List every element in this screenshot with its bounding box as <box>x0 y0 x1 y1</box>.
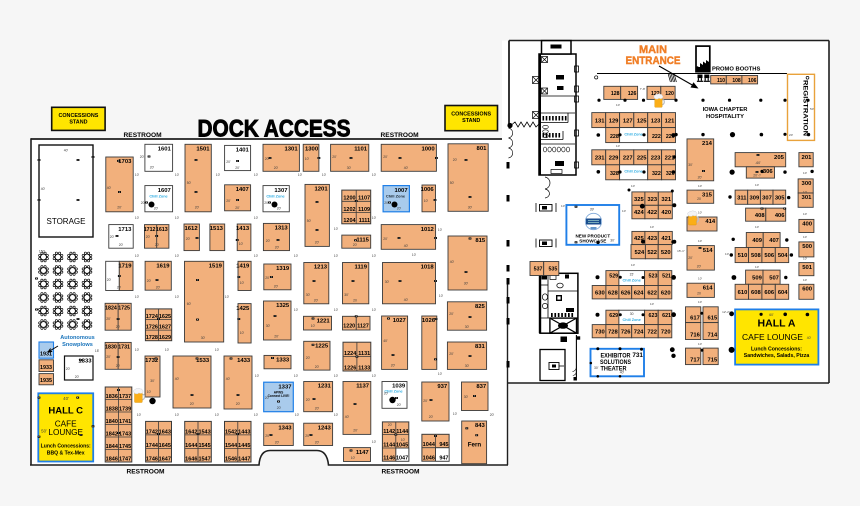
svg-text:20': 20' <box>186 237 191 241</box>
svg-text:10': 10' <box>561 204 565 208</box>
svg-text:20': 20' <box>353 429 358 433</box>
svg-text:1747: 1747 <box>119 456 131 462</box>
svg-text:1047: 1047 <box>396 456 408 462</box>
svg-text:30': 30' <box>385 280 390 284</box>
svg-text:1027: 1027 <box>393 318 407 324</box>
svg-text:10': 10' <box>295 413 300 417</box>
svg-text:1824: 1824 <box>105 306 117 312</box>
svg-text:228: 228 <box>610 134 619 140</box>
svg-text:10': 10' <box>438 228 443 232</box>
svg-text:507: 507 <box>769 275 779 281</box>
svg-text:1221: 1221 <box>317 319 331 325</box>
svg-text:20': 20' <box>265 396 270 400</box>
svg-text:1445: 1445 <box>238 443 250 449</box>
svg-text:20'-?: 20'-? <box>753 174 761 178</box>
svg-text:604: 604 <box>778 290 788 296</box>
svg-text:20': 20' <box>306 356 311 360</box>
svg-text:30': 30' <box>266 324 271 328</box>
svg-text:323: 323 <box>647 197 657 203</box>
svg-text:Chill Zone: Chill Zone <box>266 195 284 199</box>
svg-text:1146: 1146 <box>383 456 395 462</box>
svg-text:20': 20' <box>147 279 152 283</box>
svg-text:131: 131 <box>595 118 605 124</box>
svg-text:125: 125 <box>637 118 647 124</box>
svg-text:1018: 1018 <box>421 265 435 271</box>
svg-text:10': 10' <box>239 242 244 246</box>
svg-text:10': 10' <box>135 348 140 352</box>
svg-text:1846: 1846 <box>106 456 118 462</box>
svg-text:108: 108 <box>732 78 741 84</box>
svg-text:322: 322 <box>652 171 661 177</box>
svg-text:7'-8': 7'-8' <box>640 87 646 91</box>
svg-text:10': 10' <box>298 173 303 177</box>
svg-text:20': 20' <box>106 355 111 359</box>
svg-text:10': 10' <box>334 413 339 417</box>
svg-text:110: 110 <box>717 78 725 84</box>
svg-text:214: 214 <box>702 141 713 147</box>
svg-text:1739: 1739 <box>119 406 131 412</box>
svg-text:20': 20' <box>332 155 337 159</box>
svg-text:RESTROOM: RESTROOM <box>124 132 163 139</box>
svg-text:50': 50' <box>307 219 312 223</box>
svg-text:1006: 1006 <box>421 187 435 193</box>
svg-text:CONCESSIONS: CONCESSIONS <box>451 112 491 118</box>
svg-text:10': 10' <box>225 295 230 299</box>
svg-text:20': 20' <box>384 392 389 396</box>
svg-text:-60': -60' <box>755 161 761 165</box>
svg-text:1407: 1407 <box>236 187 250 193</box>
svg-text:10': 10' <box>616 103 620 107</box>
svg-text:Fern: Fern <box>468 442 482 449</box>
svg-text:205: 205 <box>774 155 785 161</box>
svg-text:20': 20' <box>265 157 270 161</box>
svg-text:524: 524 <box>635 250 645 256</box>
svg-text:1546: 1546 <box>225 456 237 462</box>
svg-text:CONCESSIONS: CONCESSIONS <box>58 113 98 119</box>
svg-text:626: 626 <box>621 290 631 296</box>
svg-text:305: 305 <box>775 195 785 201</box>
svg-text:20': 20' <box>453 158 458 162</box>
svg-text:30': 30' <box>688 163 693 167</box>
svg-text:20': 20' <box>275 441 280 445</box>
svg-text:10': 10' <box>372 254 377 258</box>
svg-text:1745: 1745 <box>119 444 131 450</box>
svg-text:CAFE: CAFE <box>55 420 77 429</box>
svg-text:10': 10' <box>334 254 339 258</box>
svg-text:10': 10' <box>698 211 702 215</box>
svg-text:20': 20' <box>274 335 279 339</box>
svg-text:606: 606 <box>764 290 774 296</box>
svg-text:1333: 1333 <box>276 358 290 364</box>
svg-text:10': 10' <box>698 184 702 188</box>
svg-text:1147: 1147 <box>356 450 370 456</box>
svg-text:10': 10' <box>372 308 377 312</box>
svg-text:20': 20' <box>141 201 146 205</box>
svg-text:535: 535 <box>548 266 557 272</box>
svg-text:10': 10' <box>803 278 807 282</box>
svg-text:815: 815 <box>475 238 486 244</box>
svg-text:537: 537 <box>534 266 543 272</box>
svg-text:Connect LIVE!: Connect LIVE! <box>268 394 290 398</box>
svg-text:10': 10' <box>755 183 759 187</box>
svg-text:Chill Zone: Chill Zone <box>623 318 641 322</box>
svg-text:520: 520 <box>661 250 671 256</box>
svg-text:20': 20' <box>697 265 702 269</box>
svg-text:1307: 1307 <box>274 188 288 194</box>
svg-text:15'-1": 15'-1" <box>677 249 685 253</box>
svg-text:1301: 1301 <box>284 147 298 153</box>
svg-text:1144: 1144 <box>396 429 409 435</box>
svg-text:529: 529 <box>609 274 618 280</box>
svg-text:307: 307 <box>762 195 772 201</box>
svg-text:40': 40' <box>404 166 409 170</box>
svg-text:10': 10' <box>216 173 221 177</box>
svg-text:10': 10' <box>240 281 245 285</box>
svg-text:1220: 1220 <box>343 324 355 330</box>
svg-text:1243: 1243 <box>318 425 332 431</box>
svg-text:20': 20' <box>315 441 320 445</box>
svg-text:1742: 1742 <box>146 429 158 435</box>
svg-text:1741: 1741 <box>119 419 131 425</box>
svg-text:311: 311 <box>737 195 747 201</box>
svg-text:20: 20 <box>353 299 357 303</box>
svg-text:1231: 1231 <box>318 384 332 390</box>
svg-text:1425: 1425 <box>236 306 250 312</box>
svg-text:Chill Zone: Chill Zone <box>386 194 406 199</box>
svg-text:20': 20' <box>116 364 121 368</box>
svg-text:IOWA CHAPTER: IOWA CHAPTER <box>703 107 749 113</box>
svg-text:30': 30' <box>344 293 349 297</box>
svg-text:CAFE LOUNGE: CAFE LOUNGE <box>742 332 803 342</box>
svg-text:STAND: STAND <box>69 120 87 126</box>
svg-text:1109: 1109 <box>358 207 370 213</box>
svg-text:201: 201 <box>802 155 813 161</box>
svg-text:300: 300 <box>802 181 813 187</box>
svg-text:801: 801 <box>477 146 488 152</box>
svg-text:1744: 1744 <box>146 443 159 449</box>
svg-text:1838: 1838 <box>106 406 118 412</box>
svg-text:40': 40' <box>226 377 231 381</box>
svg-text:10': 10' <box>372 440 377 444</box>
svg-text:1202: 1202 <box>343 207 355 213</box>
svg-text:10': 10' <box>438 372 443 376</box>
svg-text:20': 20' <box>391 364 396 368</box>
svg-text:40': 40' <box>450 260 455 264</box>
svg-text:20': 20' <box>117 286 122 290</box>
svg-text:10': 10' <box>622 209 626 213</box>
svg-text:30': 30' <box>150 379 155 383</box>
svg-text:STORAGE: STORAGE <box>47 217 86 226</box>
svg-text:20': 20' <box>266 239 271 243</box>
svg-text:20': 20' <box>140 155 145 159</box>
svg-text:20': 20' <box>155 243 160 247</box>
svg-text:20': 20' <box>226 160 231 164</box>
svg-text:1101: 1101 <box>354 147 368 153</box>
svg-text:837: 837 <box>476 384 487 390</box>
svg-text:1612: 1612 <box>184 226 198 232</box>
svg-text:10': 10' <box>372 374 377 378</box>
svg-text:30': 30' <box>594 366 599 370</box>
svg-text:Chill Zone: Chill Zone <box>623 279 641 283</box>
svg-text:40': 40' <box>63 396 69 401</box>
svg-text:40': 40' <box>107 186 112 190</box>
svg-text:408: 408 <box>755 213 765 219</box>
svg-text:406: 406 <box>775 213 785 219</box>
svg-text:10': 10' <box>401 438 406 442</box>
svg-text:514: 514 <box>703 248 714 254</box>
svg-text:10': 10' <box>137 413 142 417</box>
svg-text:BBQ & Tex-Mex: BBQ & Tex-Mex <box>47 450 85 456</box>
svg-text:40': 40' <box>345 415 350 419</box>
svg-text:20': 20' <box>315 241 320 245</box>
svg-text:10': 10' <box>254 413 259 417</box>
svg-text:20': 20' <box>156 286 161 290</box>
svg-text:10': 10' <box>803 212 807 216</box>
svg-text:1142: 1142 <box>383 429 395 435</box>
svg-text:30': 30' <box>347 166 352 170</box>
svg-text:947: 947 <box>439 456 448 462</box>
svg-text:40': 40' <box>64 149 69 153</box>
svg-text:10': 10' <box>175 254 180 258</box>
svg-text:1325: 1325 <box>276 303 290 309</box>
svg-text:20': 20' <box>277 406 282 410</box>
svg-text:40': 40' <box>41 187 46 191</box>
svg-text:REGISTRATION: REGISTRATION <box>802 80 809 136</box>
svg-text:1836: 1836 <box>106 394 118 400</box>
svg-text:522: 522 <box>647 250 657 256</box>
svg-text:1619: 1619 <box>156 264 170 270</box>
svg-text:20': 20' <box>119 243 124 247</box>
svg-text:1931: 1931 <box>40 352 52 358</box>
svg-text:20': 20' <box>236 402 241 406</box>
svg-text:1646: 1646 <box>185 456 197 462</box>
svg-text:1419: 1419 <box>236 264 250 270</box>
svg-text:50': 50' <box>810 107 814 111</box>
svg-text:409: 409 <box>752 238 762 244</box>
svg-text:10': 10' <box>175 216 180 220</box>
svg-text:714: 714 <box>708 333 718 339</box>
svg-text:715: 715 <box>708 358 718 364</box>
svg-text:10': 10' <box>254 254 259 258</box>
svg-text:20': 20' <box>315 365 320 369</box>
svg-text:20': 20' <box>306 398 311 402</box>
svg-text:608: 608 <box>751 290 761 296</box>
svg-text:301: 301 <box>802 195 813 201</box>
svg-text:1343: 1343 <box>278 425 292 431</box>
svg-text:1443: 1443 <box>238 429 250 435</box>
svg-text:SHOWCASE: SHOWCASE <box>579 239 606 244</box>
svg-text:825: 825 <box>475 304 486 310</box>
svg-text:ENTRANCE: ENTRANCE <box>626 55 681 67</box>
svg-text:60': 60' <box>187 302 192 306</box>
svg-text:120: 120 <box>665 91 674 97</box>
svg-text:10': 10' <box>254 216 259 220</box>
svg-text:106: 106 <box>748 78 757 84</box>
svg-text:10': 10' <box>135 216 140 220</box>
svg-text:509: 509 <box>752 275 762 281</box>
svg-text:10': 10' <box>803 190 807 194</box>
svg-text:321: 321 <box>661 197 671 203</box>
svg-text:20: 20 <box>697 292 701 296</box>
svg-text:1045: 1045 <box>396 443 408 449</box>
svg-text:315: 315 <box>702 192 713 198</box>
svg-text:510: 510 <box>738 253 748 259</box>
svg-text:30': 30' <box>201 336 206 340</box>
svg-text:Sandwiches, Salads, Pizza: Sandwiches, Salads, Pizza <box>744 353 810 359</box>
svg-text:20': 20' <box>423 399 428 403</box>
svg-text:521: 521 <box>662 274 671 280</box>
svg-text:1724: 1724 <box>146 314 159 320</box>
svg-text:1026: 1026 <box>422 318 436 324</box>
svg-text:20': 20' <box>190 402 195 406</box>
svg-text:20': 20' <box>116 325 121 329</box>
svg-text:HALL A: HALL A <box>758 318 796 330</box>
svg-text:20': 20' <box>449 352 454 356</box>
svg-text:621: 621 <box>662 313 671 319</box>
svg-text:129: 129 <box>609 118 619 124</box>
svg-text:10': 10' <box>439 294 444 298</box>
svg-text:20': 20' <box>384 201 389 205</box>
svg-text:20': 20' <box>275 246 280 250</box>
svg-text:1012: 1012 <box>421 227 435 233</box>
svg-text:20': 20' <box>66 367 71 371</box>
svg-text:1627: 1627 <box>159 325 171 331</box>
svg-text:400: 400 <box>802 222 813 228</box>
svg-text:1703: 1703 <box>118 159 132 165</box>
svg-text:731: 731 <box>632 352 643 359</box>
svg-text:10': 10' <box>351 456 356 460</box>
svg-text:10': 10' <box>255 374 260 378</box>
svg-text:PROMO BOOTHS: PROMO BOOTHS <box>712 67 760 73</box>
svg-text:10': 10' <box>755 225 759 229</box>
svg-text:20': 20' <box>305 434 310 438</box>
svg-text:728: 728 <box>608 329 618 335</box>
svg-text:10': 10' <box>698 300 702 304</box>
svg-text:1144: 1144 <box>383 443 396 449</box>
svg-text:500: 500 <box>802 244 813 250</box>
svg-text:1433: 1433 <box>237 358 251 364</box>
svg-text:1601: 1601 <box>158 147 172 153</box>
svg-text:10': 10' <box>424 199 429 203</box>
svg-text:10': 10' <box>135 295 140 299</box>
svg-text:20': 20' <box>265 434 270 438</box>
svg-text:1830: 1830 <box>105 345 117 351</box>
svg-text:1613: 1613 <box>156 227 168 233</box>
svg-text:10': 10' <box>254 173 259 177</box>
svg-text:1731: 1731 <box>118 345 130 351</box>
svg-text:12'-2": 12'-2" <box>722 310 730 314</box>
svg-text:127: 127 <box>623 118 633 124</box>
svg-text:1519: 1519 <box>209 264 223 270</box>
svg-text:RESTROOM: RESTROOM <box>381 132 420 139</box>
svg-text:30': 30' <box>464 282 469 286</box>
svg-text:39': 39' <box>590 208 595 212</box>
svg-text:40': 40' <box>404 298 409 302</box>
svg-text:1513: 1513 <box>210 226 224 232</box>
svg-text:STAND: STAND <box>462 118 480 124</box>
svg-text:1131: 1131 <box>358 351 370 357</box>
svg-text:50': 50' <box>187 181 192 185</box>
svg-text:1111: 1111 <box>359 218 370 224</box>
svg-text:50': 50' <box>41 429 47 434</box>
svg-text:20': 20' <box>397 207 402 211</box>
svg-text:10': 10' <box>334 308 339 312</box>
svg-text:614: 614 <box>703 285 714 291</box>
svg-text:223: 223 <box>651 156 661 162</box>
svg-text:1501: 1501 <box>196 147 210 153</box>
svg-text:1607: 1607 <box>158 188 172 194</box>
svg-text:20': 20' <box>75 375 80 379</box>
svg-text:1544: 1544 <box>225 443 238 449</box>
svg-text:40': 40' <box>807 336 812 340</box>
svg-text:10': 10' <box>294 374 299 378</box>
svg-text:1046: 1046 <box>423 456 435 462</box>
svg-text:622: 622 <box>647 290 657 296</box>
svg-text:1224: 1224 <box>344 351 357 357</box>
svg-text:422: 422 <box>647 210 657 216</box>
svg-text:1413: 1413 <box>236 226 250 232</box>
svg-text:420: 420 <box>661 210 671 216</box>
svg-text:1044: 1044 <box>423 442 436 448</box>
svg-text:18': 18' <box>95 349 100 353</box>
svg-text:10': 10' <box>322 173 327 177</box>
svg-text:717: 717 <box>690 358 700 364</box>
svg-text:620: 620 <box>661 290 671 296</box>
svg-text:10': 10' <box>334 227 339 231</box>
svg-text:1719: 1719 <box>118 264 132 270</box>
svg-text:1543: 1543 <box>198 429 210 435</box>
svg-text:20': 20' <box>110 235 115 239</box>
svg-text:30': 30' <box>464 395 469 399</box>
svg-text:1200: 1200 <box>343 196 355 202</box>
svg-text:1313: 1313 <box>275 226 289 232</box>
svg-text:1137: 1137 <box>356 384 370 390</box>
svg-text:10': 10' <box>240 331 245 335</box>
svg-text:730: 730 <box>595 329 605 335</box>
svg-text:30': 30' <box>465 364 470 368</box>
svg-text:HALL C: HALL C <box>48 405 83 416</box>
svg-text:421: 421 <box>661 236 671 242</box>
svg-text:623: 623 <box>649 313 658 319</box>
svg-text:LOUNGE: LOUNGE <box>48 428 83 437</box>
svg-text:1713: 1713 <box>118 227 132 233</box>
svg-text:628: 628 <box>608 290 618 296</box>
svg-text:10': 10' <box>803 257 807 261</box>
svg-text:20': 20' <box>314 299 319 303</box>
svg-text:1204: 1204 <box>343 218 356 224</box>
svg-text:1647: 1647 <box>159 456 171 462</box>
svg-text:1119: 1119 <box>355 265 368 271</box>
svg-text:RESTROOM: RESTROOM <box>381 468 420 475</box>
svg-text:20': 20' <box>277 207 282 211</box>
svg-text:1225: 1225 <box>315 344 329 350</box>
svg-text:30: 30 <box>630 312 634 316</box>
svg-text:126: 126 <box>628 91 637 97</box>
svg-text:726: 726 <box>621 329 631 335</box>
svg-text:615: 615 <box>708 315 718 321</box>
svg-text:20': 20' <box>397 403 402 407</box>
svg-text:10': 10' <box>175 413 180 417</box>
svg-text:501: 501 <box>802 265 813 271</box>
svg-text:10': 10' <box>175 295 180 299</box>
svg-text:10': 10' <box>372 173 377 177</box>
svg-text:Autonomous: Autonomous <box>60 335 95 341</box>
svg-text:20': 20' <box>226 199 231 203</box>
svg-text:508: 508 <box>751 253 761 259</box>
svg-text:10': 10' <box>698 239 702 243</box>
svg-text:Chill Zone: Chill Zone <box>149 195 167 199</box>
svg-text:10': 10' <box>165 348 170 352</box>
